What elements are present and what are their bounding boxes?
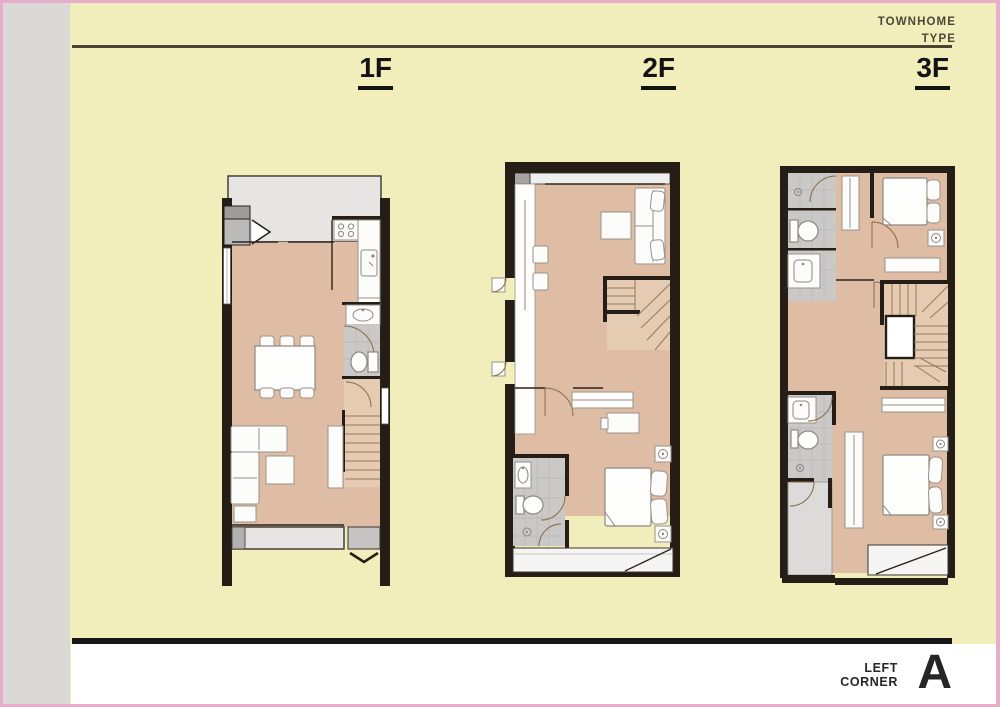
coffee-table xyxy=(601,212,631,239)
staircase xyxy=(342,376,380,487)
side-door-left-lower xyxy=(492,362,506,376)
left-margin-band xyxy=(3,3,70,704)
nightstand xyxy=(655,526,671,542)
floor-label-3f: 3F xyxy=(850,52,950,90)
page-title-line1: TOWNHOME xyxy=(878,14,956,31)
bathroom xyxy=(513,454,569,548)
entrance xyxy=(348,527,380,562)
nightstand xyxy=(933,515,948,529)
toilet-icon xyxy=(516,496,543,514)
toilet-icon xyxy=(791,430,818,449)
entrance-arrow-icon xyxy=(350,553,378,562)
wardrobe xyxy=(845,432,863,528)
washbasin-icon xyxy=(788,397,816,423)
bathroom-lower xyxy=(788,391,836,482)
bathroom xyxy=(342,302,380,376)
stove-icon xyxy=(334,220,358,240)
front-porch xyxy=(232,527,344,549)
nightstand xyxy=(933,437,948,451)
side-door-left-upper xyxy=(492,278,506,292)
unit-type-letter: A xyxy=(917,645,952,700)
nightstand xyxy=(655,446,671,462)
toilet-icon xyxy=(351,352,378,372)
bathroom-upper xyxy=(788,173,836,301)
washbasin-icon xyxy=(346,305,380,325)
page-frame: TOWNHOME TYPE 1F 2F 3F xyxy=(0,0,1000,707)
wardrobe xyxy=(842,176,859,230)
header-rule xyxy=(72,45,952,48)
page-title: TOWNHOME TYPE xyxy=(878,14,956,47)
utility-room xyxy=(788,478,832,575)
washbasin-icon xyxy=(788,254,820,288)
floor-label-2f: 2F xyxy=(576,52,676,90)
nightstand xyxy=(928,230,944,246)
floorplan-3f xyxy=(780,160,955,585)
staircase xyxy=(603,276,670,350)
footer-band: LEFT CORNER A xyxy=(71,644,996,704)
tv-console xyxy=(328,426,343,488)
corner-label-line1: LEFT xyxy=(840,661,898,675)
washbasin-icon xyxy=(515,462,531,488)
corner-label-line2: CORNER xyxy=(840,675,898,689)
floorplan-1f xyxy=(222,170,390,588)
balcony xyxy=(513,548,673,572)
coffee-table xyxy=(266,456,294,484)
dining-table xyxy=(255,336,315,398)
toilet-icon xyxy=(790,220,818,242)
floor-label-1f: 1F xyxy=(293,52,393,90)
corner-label: LEFT CORNER xyxy=(840,661,898,690)
sofa xyxy=(635,188,665,264)
bench xyxy=(885,258,940,272)
desk xyxy=(882,398,945,412)
floorplan-2f xyxy=(491,160,680,580)
